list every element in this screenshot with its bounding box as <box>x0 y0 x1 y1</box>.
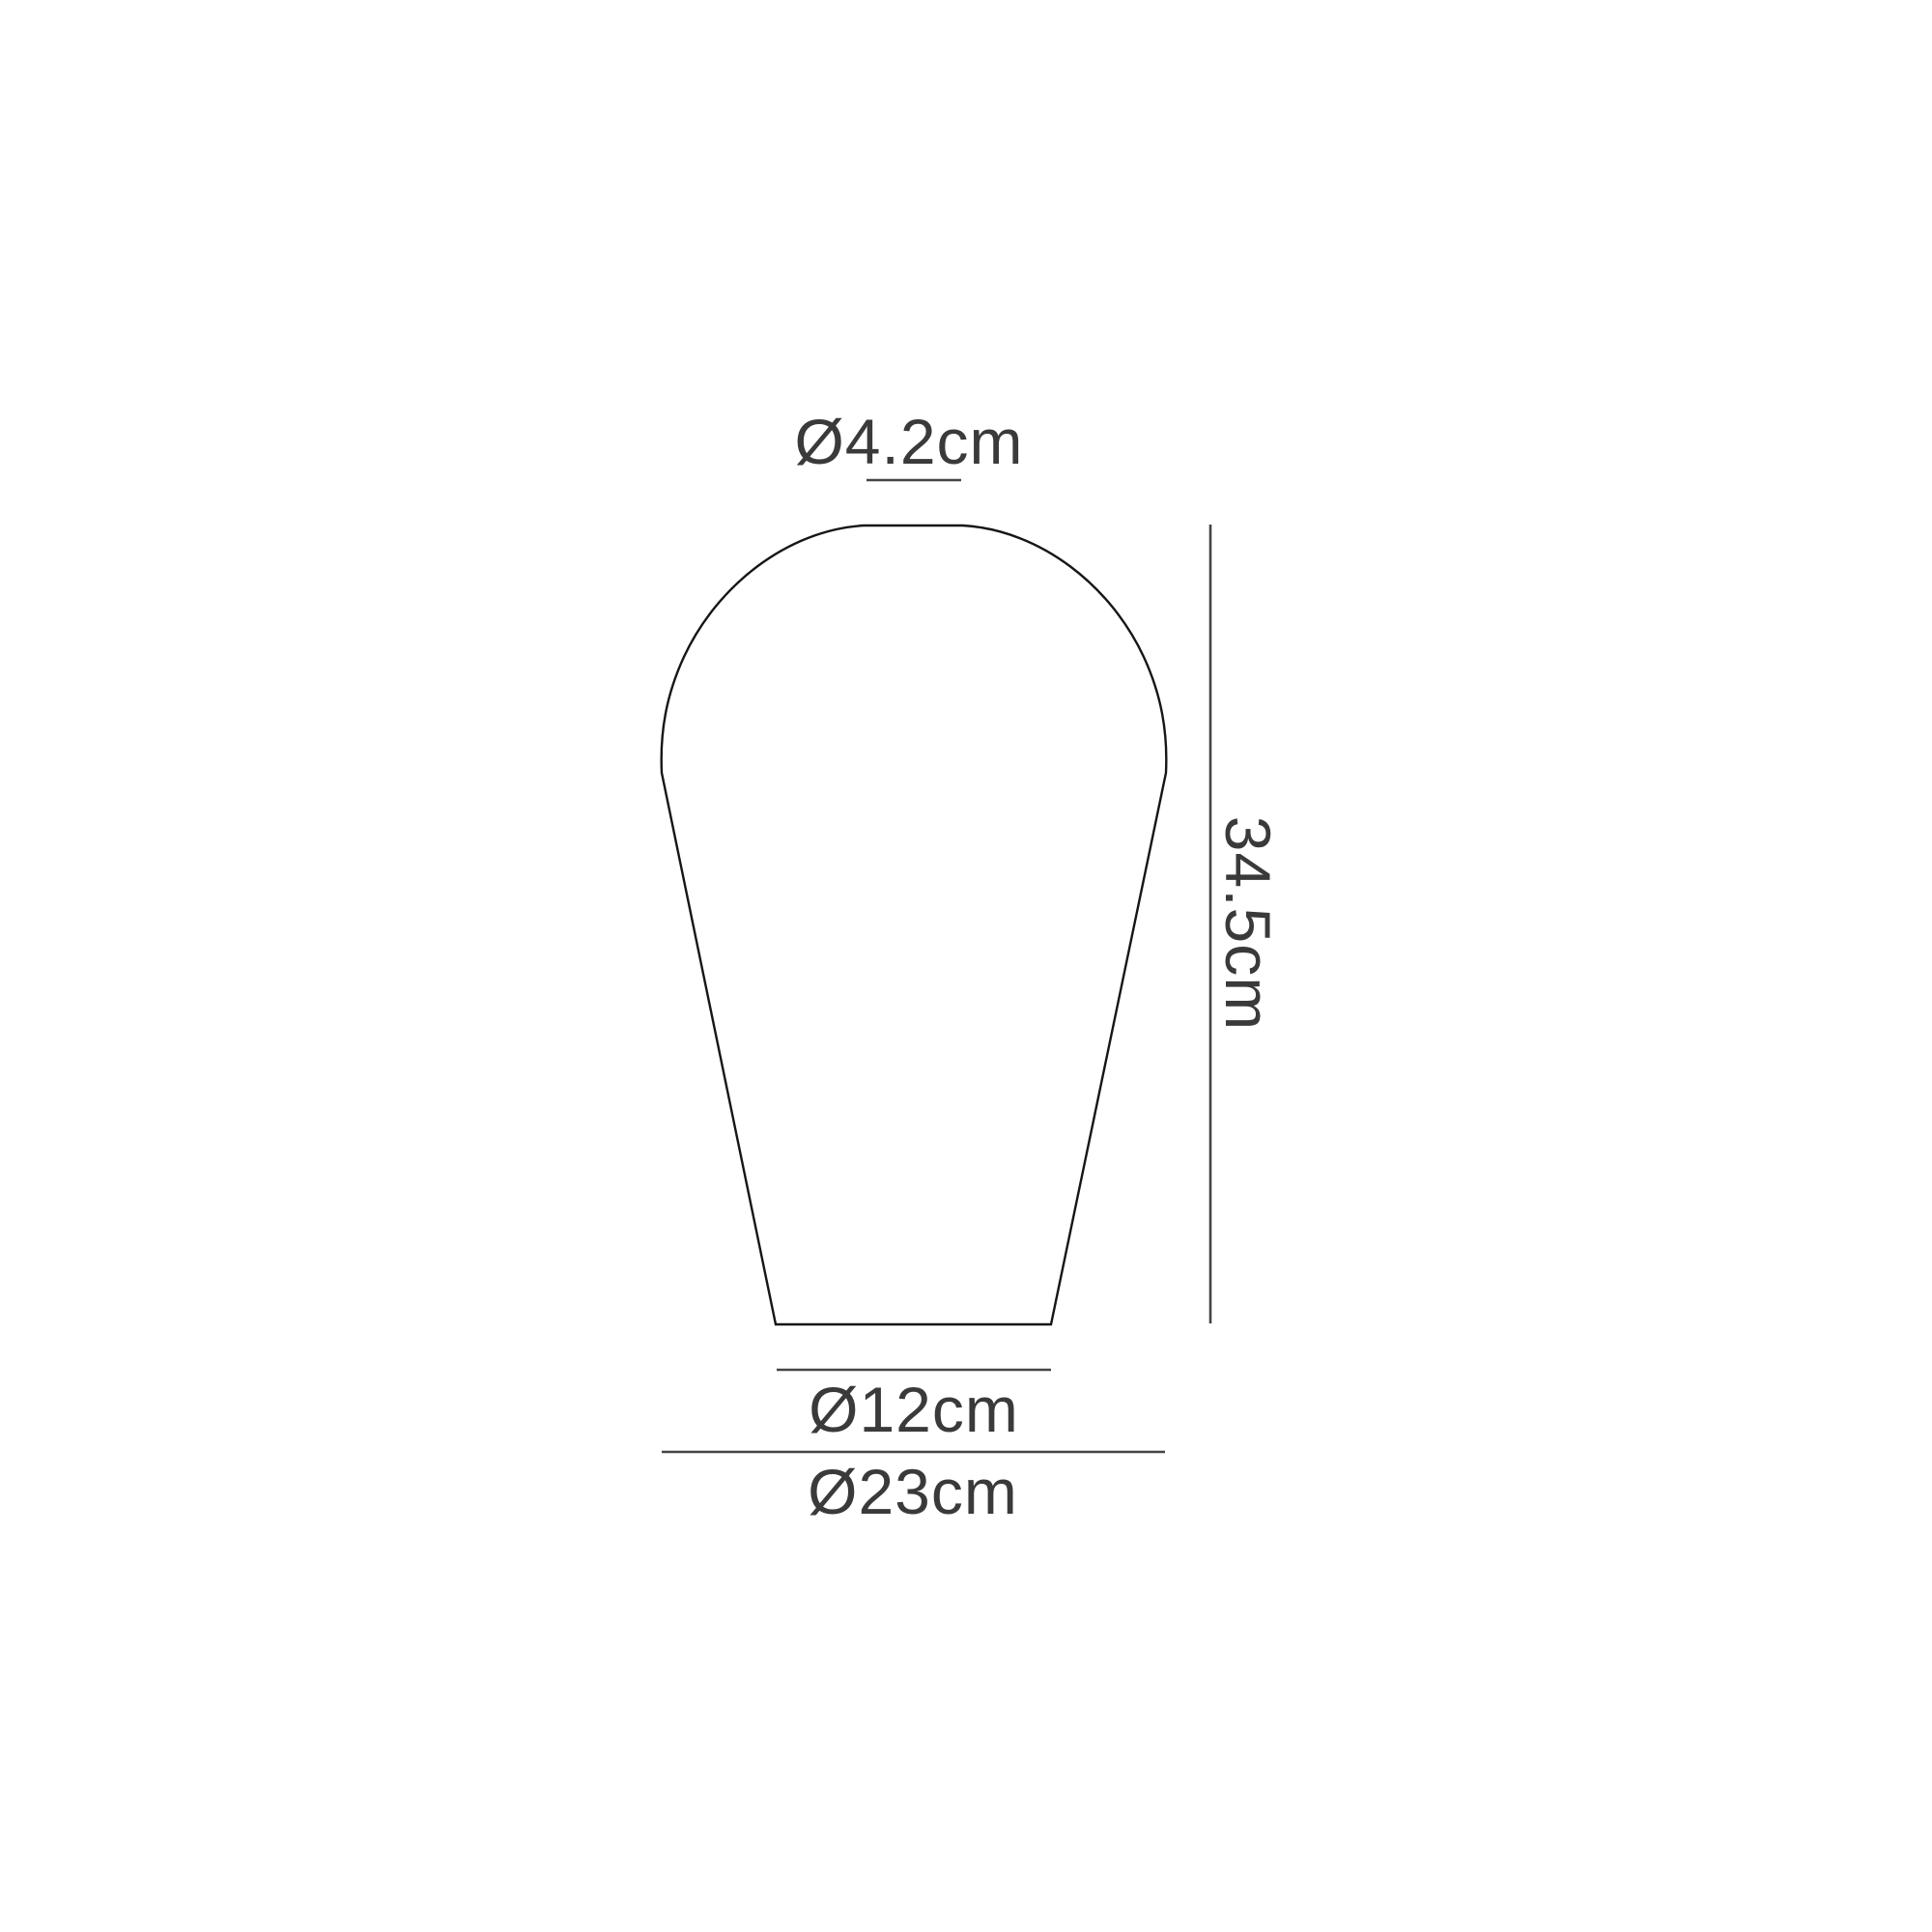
height-label: 34.5cm <box>1216 816 1280 1031</box>
dimension-diagram: Ø4.2cm 34.5cm Ø12cm Ø23cm <box>0 0 1932 1932</box>
diagram-linework <box>0 0 1932 1932</box>
top-diameter-label: Ø4.2cm <box>794 410 1023 473</box>
base-diameter-label: Ø12cm <box>809 1378 1019 1441</box>
max-diameter-label: Ø23cm <box>808 1460 1018 1523</box>
lampshade-outline <box>662 526 1167 1324</box>
